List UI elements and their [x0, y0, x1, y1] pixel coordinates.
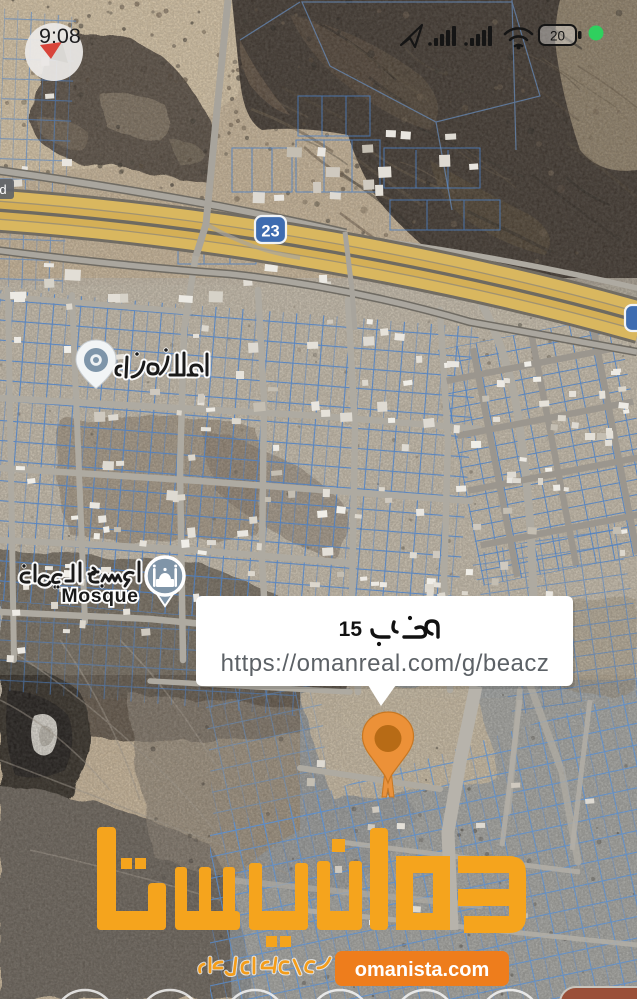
svg-text:Mosque: Mosque [61, 585, 138, 607]
svg-text:https://omanreal.com/g/beacz: https://omanreal.com/g/beacz [221, 650, 550, 677]
svg-text:20: 20 [550, 29, 565, 44]
svg-text:9:08: 9:08 [39, 24, 81, 48]
svg-text:omanista.com: omanista.com [355, 959, 489, 981]
svg-text:23: 23 [261, 223, 279, 241]
svg-text:15: 15 [339, 618, 363, 641]
svg-text:d: d [0, 182, 7, 197]
